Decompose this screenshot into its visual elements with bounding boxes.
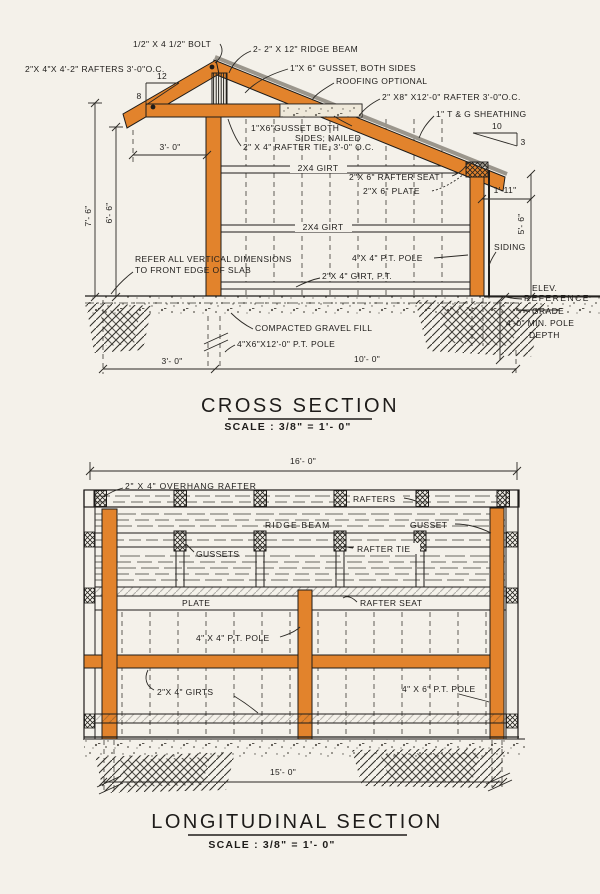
dim-slope-run-12: 12 [157, 71, 167, 81]
label-siding: SIDING [494, 242, 526, 252]
dim-height-5-6: 5'- 6" [516, 213, 526, 234]
buried-center-pole [204, 316, 228, 368]
rafter-seat-block [466, 162, 488, 177]
label-plate: 2"X 6" PLATE [363, 186, 420, 196]
label-long-pole-4x4: 4" X 4" P.T. POLE [196, 633, 270, 643]
long-girt [84, 655, 504, 668]
label-note-2: TO FRONT EDGE OF SLAB [135, 265, 251, 275]
long-left-pole [102, 509, 117, 740]
label-girt-pt: 2"X 4" GIRT, P.T. [322, 271, 392, 281]
rafter-bolt [151, 105, 156, 110]
label-note-1: REFER ALL VERTICAL DIMENSIONS [135, 254, 292, 264]
label-long-rafter-seat: RAFTER SEAT [360, 598, 422, 608]
label-sheathing: 1" T & G SHEATHING [436, 109, 527, 119]
cross-section-title: CROSS SECTION [201, 395, 399, 417]
right-end-strip [506, 490, 518, 740]
label-pole-4x4: 4"X 4" P.T. POLE [352, 253, 423, 263]
label-grade: GRADE [532, 306, 564, 316]
dim-bottom-15-0: 15'- 0" [270, 767, 296, 777]
longitudinal-section-scale: SCALE : 3/8" = 1'- 0" [208, 839, 335, 851]
label-rafter-tie: 2" X 4" RAFTER TIE, 3'-0" O.C. [243, 142, 374, 152]
label-roofing-optional: ROOFING OPTIONAL [336, 76, 427, 86]
label-girt-mid: 2X4 GIRT [303, 222, 344, 232]
left-end-strip [84, 490, 95, 740]
label-long-girts: 2"X 4" GIRTS [157, 687, 214, 697]
label-rafter-right: 2" X8" X12'-0" RAFTER 3'-0"O.C. [382, 92, 521, 102]
ridge-beam-band [95, 531, 506, 551]
dim-slope-run-10: 10 [492, 121, 502, 131]
label-rafter-seat: 2"X 6" RAFTER SEAT [349, 172, 440, 182]
dim-bottom-10-0: 10'- 0" [354, 354, 380, 364]
ridge-gusset-speckle [280, 104, 362, 117]
label-girt-upper: 2X4 GIRT [298, 163, 339, 173]
dim-height-7-6: 7'- 6" [83, 205, 93, 226]
ridge-bolt [210, 65, 215, 70]
label-ridge-beam: 2- 2" X 12" RIDGE BEAM [253, 44, 358, 54]
right-wall-pole [470, 177, 484, 298]
label-rafters-left: 2"X 4"X 4'-2" RAFTERS 3'-0"O.C. [25, 64, 165, 74]
label-long-plate: PLATE [182, 598, 210, 608]
cross-section-drawing: 1/2" X 4 1/2" BOLT 2"X 4"X 4'-2" RAFTERS… [25, 39, 600, 433]
mid-plank-lines [95, 556, 505, 580]
cross-section-scale: SCALE : 3/8" = 1'- 0" [224, 421, 351, 433]
long-right-pole [490, 508, 504, 740]
label-long-gusset: GUSSET [410, 520, 447, 530]
label-bolt: 1/2" X 4 1/2" BOLT [133, 39, 211, 49]
dim-eave-1-11: 1'-11" [494, 185, 517, 195]
label-overhang-rafter: 2" X 4" OVERHANG RAFTER [125, 481, 257, 491]
label-elev-2: REFERENCE [524, 293, 590, 303]
label-pole-4x6: 4"X6"X12'-0" P.T. POLE [237, 339, 335, 349]
dim-height-6-6: 6'- 6" [104, 202, 114, 223]
longitudinal-section-title: LONGITUDINAL SECTION [151, 811, 443, 833]
label-gusset-both-sides: 1"X 6" GUSSET, BOTH SIDES [290, 63, 416, 73]
label-pole-depth-1: 4'-0" MIN. POLE [506, 318, 574, 328]
label-pole-depth-2: DEPTH [529, 330, 560, 340]
label-gravel: COMPACTED GRAVEL FILL [255, 323, 372, 333]
label-rafters: RAFTERS [353, 494, 395, 504]
label-long-ridge-beam: RIDGE BEAM [265, 520, 330, 530]
dim-bottom-3-0: 3'- 0" [161, 356, 182, 366]
dim-top-3-0: 3'- 0" [159, 142, 180, 152]
dim-top-16-0: 16'- 0" [290, 456, 316, 466]
shed-plan-drawing: 1/2" X 4 1/2" BOLT 2"X 4"X 4'-2" RAFTERS… [0, 0, 600, 894]
label-long-gussets: GUSSETS [196, 549, 239, 559]
label-long-rafter-tie: RAFTER TIE [357, 544, 410, 554]
dim-slope-rise-3: 3 [520, 137, 525, 147]
longitudinal-section-drawing: 16'- 0" [84, 456, 525, 851]
label-long-pole-4x6: 4" X 6" P.T. POLE [402, 684, 476, 694]
roof-edge-band [84, 490, 519, 507]
label-elev-1: ELEV. [532, 283, 557, 293]
ridge-beam-member [212, 73, 227, 106]
label-gusset-nailed-1: 1"X6"GUSSET BOTH [251, 123, 339, 133]
dim-slope-rise-8: 8 [136, 91, 141, 101]
